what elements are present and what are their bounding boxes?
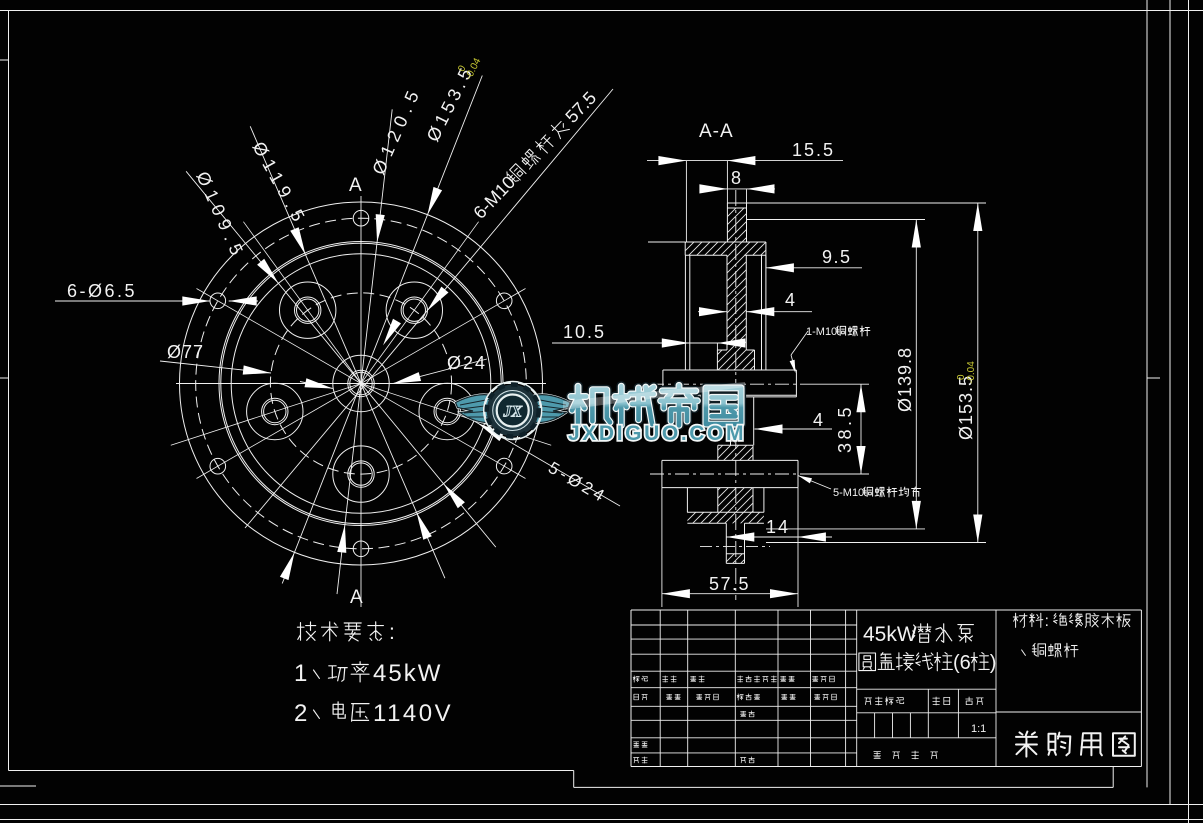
svg-text:1:1: 1:1 bbox=[971, 723, 986, 735]
svg-text:1-M10: 1-M10 bbox=[806, 326, 837, 338]
svg-text:): ) bbox=[990, 652, 997, 674]
svg-text:5-M10: 5-M10 bbox=[833, 487, 864, 499]
svg-text:45kW: 45kW bbox=[373, 660, 442, 687]
svg-text:6-Ø6.5: 6-Ø6.5 bbox=[67, 281, 137, 301]
svg-text:4: 4 bbox=[785, 290, 795, 310]
svg-text:1: 1 bbox=[294, 660, 307, 687]
svg-text:14: 14 bbox=[766, 517, 790, 537]
svg-text:2: 2 bbox=[294, 700, 307, 727]
svg-text:Ø24: Ø24 bbox=[447, 353, 487, 373]
svg-text::: : bbox=[389, 621, 395, 644]
svg-text:8: 8 bbox=[731, 168, 741, 188]
svg-text:15.5: 15.5 bbox=[792, 140, 835, 160]
svg-text::: : bbox=[1045, 613, 1049, 630]
svg-text:JX: JX bbox=[502, 404, 522, 421]
svg-text:9.5: 9.5 bbox=[822, 247, 852, 267]
svg-text:Ø77: Ø77 bbox=[167, 342, 204, 362]
svg-text:45kW: 45kW bbox=[863, 623, 917, 646]
svg-text:4: 4 bbox=[813, 410, 823, 430]
svg-text:Ø139.8: Ø139.8 bbox=[895, 347, 915, 412]
svg-text:1140V: 1140V bbox=[373, 700, 453, 727]
svg-text:A: A bbox=[349, 175, 362, 196]
svg-text:38.5: 38.5 bbox=[835, 404, 855, 453]
svg-text:A-A: A-A bbox=[699, 121, 734, 142]
svg-text:10.5: 10.5 bbox=[563, 322, 606, 342]
svg-text:57.5: 57.5 bbox=[709, 574, 750, 594]
svg-text:-0.04: -0.04 bbox=[966, 361, 977, 384]
svg-text:A: A bbox=[350, 587, 363, 608]
svg-text:(6: (6 bbox=[953, 652, 971, 674]
svg-text:JXDIGUO.COM: JXDIGUO.COM bbox=[568, 422, 744, 445]
